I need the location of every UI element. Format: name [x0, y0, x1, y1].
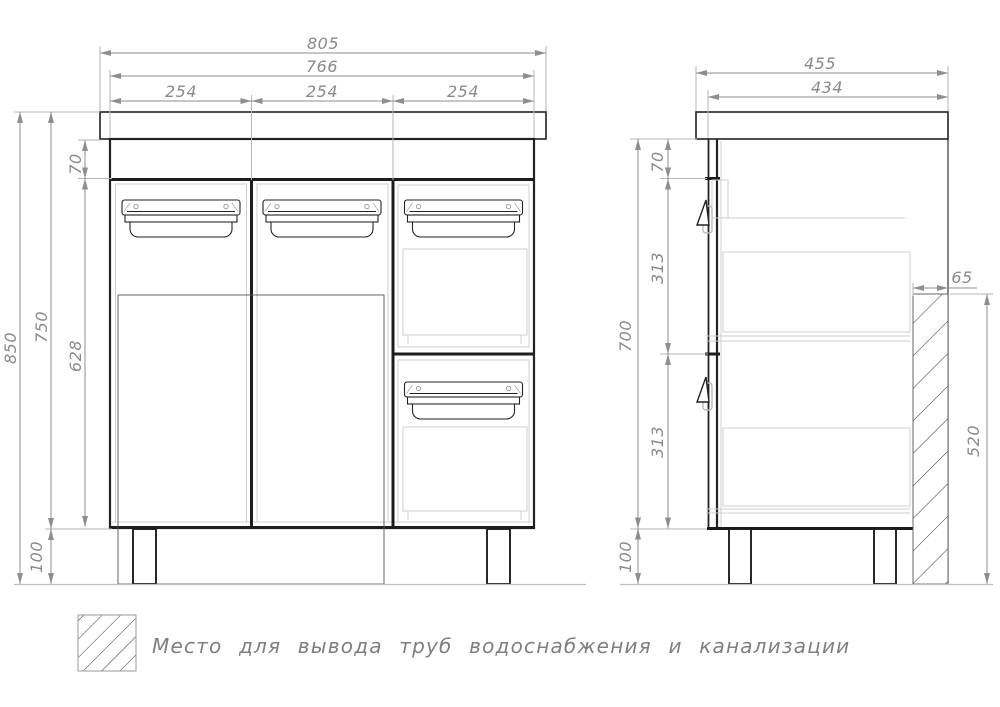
technical-drawing-page: 805 766 254 254 254 850 750 70 628 100	[0, 0, 1000, 707]
dim-65: 65	[951, 268, 972, 287]
side-pipe-zone-hatch	[913, 294, 948, 584]
dim-70: 70	[66, 153, 85, 174]
front-view	[14, 112, 586, 585]
door-handle-icon	[122, 200, 240, 237]
front-countertop	[100, 112, 546, 139]
side-front-leg	[729, 529, 751, 584]
dim-100: 100	[27, 541, 46, 573]
dim-434: 434	[811, 78, 843, 97]
side-upper-drawer-box	[723, 252, 910, 332]
door-handle-icon	[263, 200, 381, 237]
side-back-leg	[874, 529, 896, 584]
dim-313-lower: 313	[648, 426, 667, 458]
vanity-cabinet-drawing: 805 766 254 254 254 850 750 70 628 100	[0, 0, 1000, 707]
side-countertop	[696, 112, 948, 139]
front-pipe-zone-hatch	[118, 295, 384, 584]
drawer-handle-icon	[405, 200, 523, 237]
legend: Место для вывода труб водоснабжения и ка…	[78, 615, 850, 671]
dim-750: 750	[32, 311, 51, 343]
dim-254-middle: 254	[306, 82, 338, 101]
front-right-leg	[487, 529, 510, 584]
dim-100-side: 100	[616, 541, 635, 573]
drawer-handle-icon	[405, 382, 523, 419]
legend-hatch-swatch-icon	[78, 615, 136, 671]
dim-700: 700	[616, 320, 635, 352]
dim-628: 628	[66, 340, 85, 372]
legend-text: Место для вывода труб водоснабжения и ка…	[152, 634, 850, 658]
dim-254-right: 254	[447, 82, 479, 101]
dim-254-left: 254	[165, 82, 197, 101]
dim-805: 805	[307, 34, 339, 53]
dim-70-side: 70	[648, 151, 667, 172]
dim-850: 850	[1, 332, 20, 364]
drawer-handle-profile-icon	[697, 377, 712, 410]
dim-455: 455	[804, 54, 836, 73]
dim-313-upper: 313	[648, 252, 667, 284]
side-lower-drawer-box	[723, 428, 910, 506]
dim-766: 766	[306, 57, 338, 76]
side-hinge-plate	[712, 180, 728, 218]
side-view	[620, 112, 993, 585]
drawer-handle-profile-icon	[697, 200, 712, 233]
dim-520: 520	[964, 425, 983, 457]
